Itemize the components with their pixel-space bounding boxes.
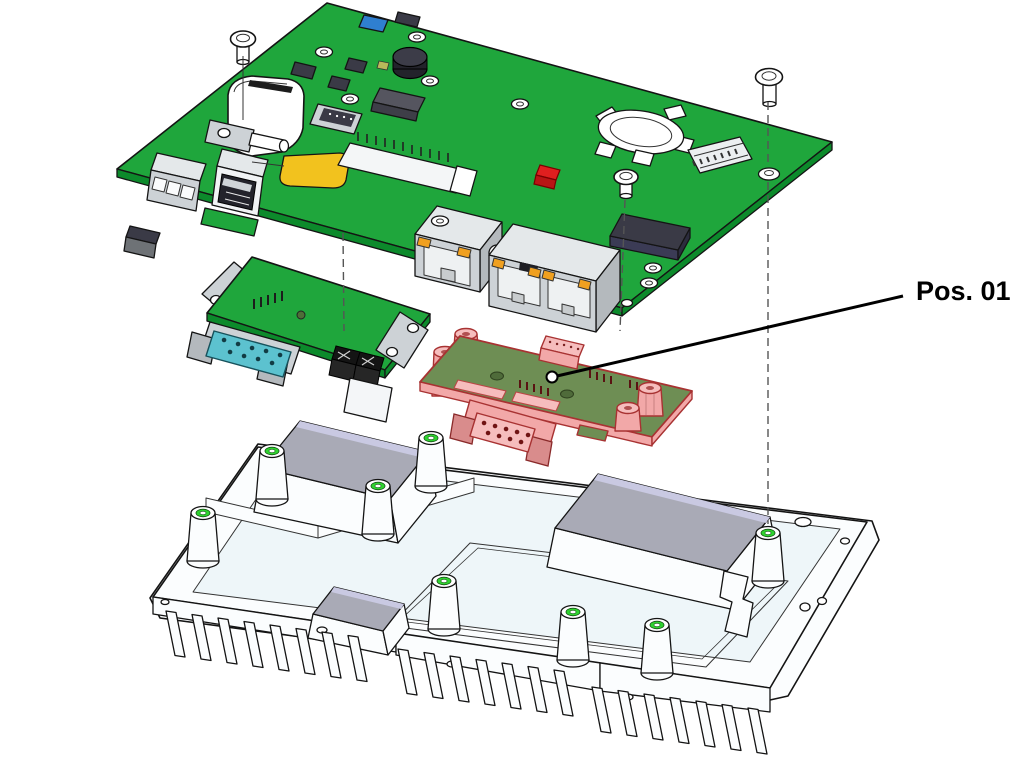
cone-hole [428, 436, 434, 439]
screw-head [756, 69, 783, 86]
cone-hole [375, 484, 381, 487]
standoff-cone [428, 575, 460, 637]
buzzer [393, 48, 427, 79]
standoff-cone [641, 619, 673, 681]
standoff-hole [646, 386, 654, 390]
pcb-mounting-pad [641, 278, 658, 288]
standoff-cone [557, 606, 589, 668]
terminal-socket [180, 185, 195, 200]
chassis-hole [161, 600, 169, 605]
pad-hole [347, 97, 354, 101]
screw-head [614, 170, 638, 185]
standoff-cone [752, 527, 784, 589]
cone-body [641, 625, 673, 673]
pcb-mounting-pad [342, 94, 359, 104]
screw-tip [620, 194, 632, 199]
hex-standoff [637, 383, 663, 417]
pcb-hole-pad [561, 390, 574, 398]
heatsink-chassis [150, 421, 879, 754]
exploded-view-diagram: Pos. 01 [0, 0, 1024, 767]
pcb-mounting-pad [645, 263, 662, 273]
pcb-mounting-pad [512, 99, 529, 109]
pad-hole [437, 219, 444, 223]
standoff-hole [624, 406, 632, 410]
terminal-socket [166, 181, 181, 196]
cone-hole [200, 511, 206, 514]
standoff-cone [256, 445, 288, 507]
pcb-mounting-pad [316, 47, 333, 57]
cone-body [557, 612, 589, 660]
standoff-cone [187, 507, 219, 569]
smd-chip [377, 61, 389, 70]
pad-hole [414, 35, 421, 39]
heatsink-fin [722, 705, 741, 751]
leader-endpoint [547, 372, 558, 383]
heatsink-fin [618, 691, 637, 737]
standoff-cone [362, 480, 394, 542]
cone-body [752, 533, 784, 581]
chassis-hole [795, 518, 811, 527]
serial-adapter-board [187, 257, 430, 422]
pcb-mounting-pad [432, 216, 449, 226]
cone-body [187, 513, 219, 561]
cone-hole [654, 623, 660, 626]
chassis-hole [841, 538, 850, 544]
callout-label-pos-01: Pos. 01 [916, 276, 1011, 307]
buzzer-top [393, 48, 427, 67]
cone-body [415, 438, 447, 486]
heatsink-fin [592, 687, 611, 733]
cone-hole [269, 449, 275, 452]
serial-pcb-hole [297, 311, 305, 319]
rj45-port-tab [441, 268, 455, 282]
cone-hole [570, 610, 576, 613]
barrel-end [280, 140, 289, 152]
pcb-hole-pad [491, 372, 504, 380]
chassis-hole [800, 603, 810, 611]
heatsink-fin [644, 694, 663, 740]
standoff-hole [462, 332, 470, 336]
terminal-socket [152, 177, 167, 192]
pad-hole [427, 79, 434, 83]
pcb-mounting-pad [422, 76, 439, 86]
screw-head [231, 31, 256, 47]
pad-hole [517, 102, 524, 106]
aux-connector [124, 226, 160, 258]
standoff-cone [415, 432, 447, 494]
pcb-mounting-pad [409, 32, 426, 42]
bracket-hole [387, 348, 398, 357]
washer [759, 168, 780, 180]
pad-hole [321, 50, 328, 54]
hex-standoff [615, 403, 641, 432]
cone-body [428, 581, 460, 629]
pcb-corner-hole [622, 300, 633, 307]
screw-tip [763, 102, 776, 107]
cone-hole [765, 531, 771, 534]
pad-hole [650, 266, 657, 270]
bracket-hole [218, 129, 230, 138]
bracket-hole [408, 324, 419, 333]
heatsink-fin [748, 708, 767, 754]
mounting-screw [756, 69, 783, 107]
serial-standoff-block [344, 378, 392, 422]
cone-body [256, 451, 288, 499]
pad-hole [646, 281, 653, 285]
yellow-antenna-pad [280, 153, 349, 188]
heatsink-fin [696, 701, 715, 747]
cone-hole [441, 579, 447, 582]
assembly-axis-dashed-line [343, 233, 344, 331]
chassis-hole [818, 598, 827, 605]
washer-hole [765, 171, 774, 176]
terminal-block [147, 153, 206, 211]
heatsink-fin [670, 698, 689, 744]
pos01-io-board [420, 329, 692, 467]
usb-connector [212, 149, 268, 216]
cone-body [362, 486, 394, 534]
